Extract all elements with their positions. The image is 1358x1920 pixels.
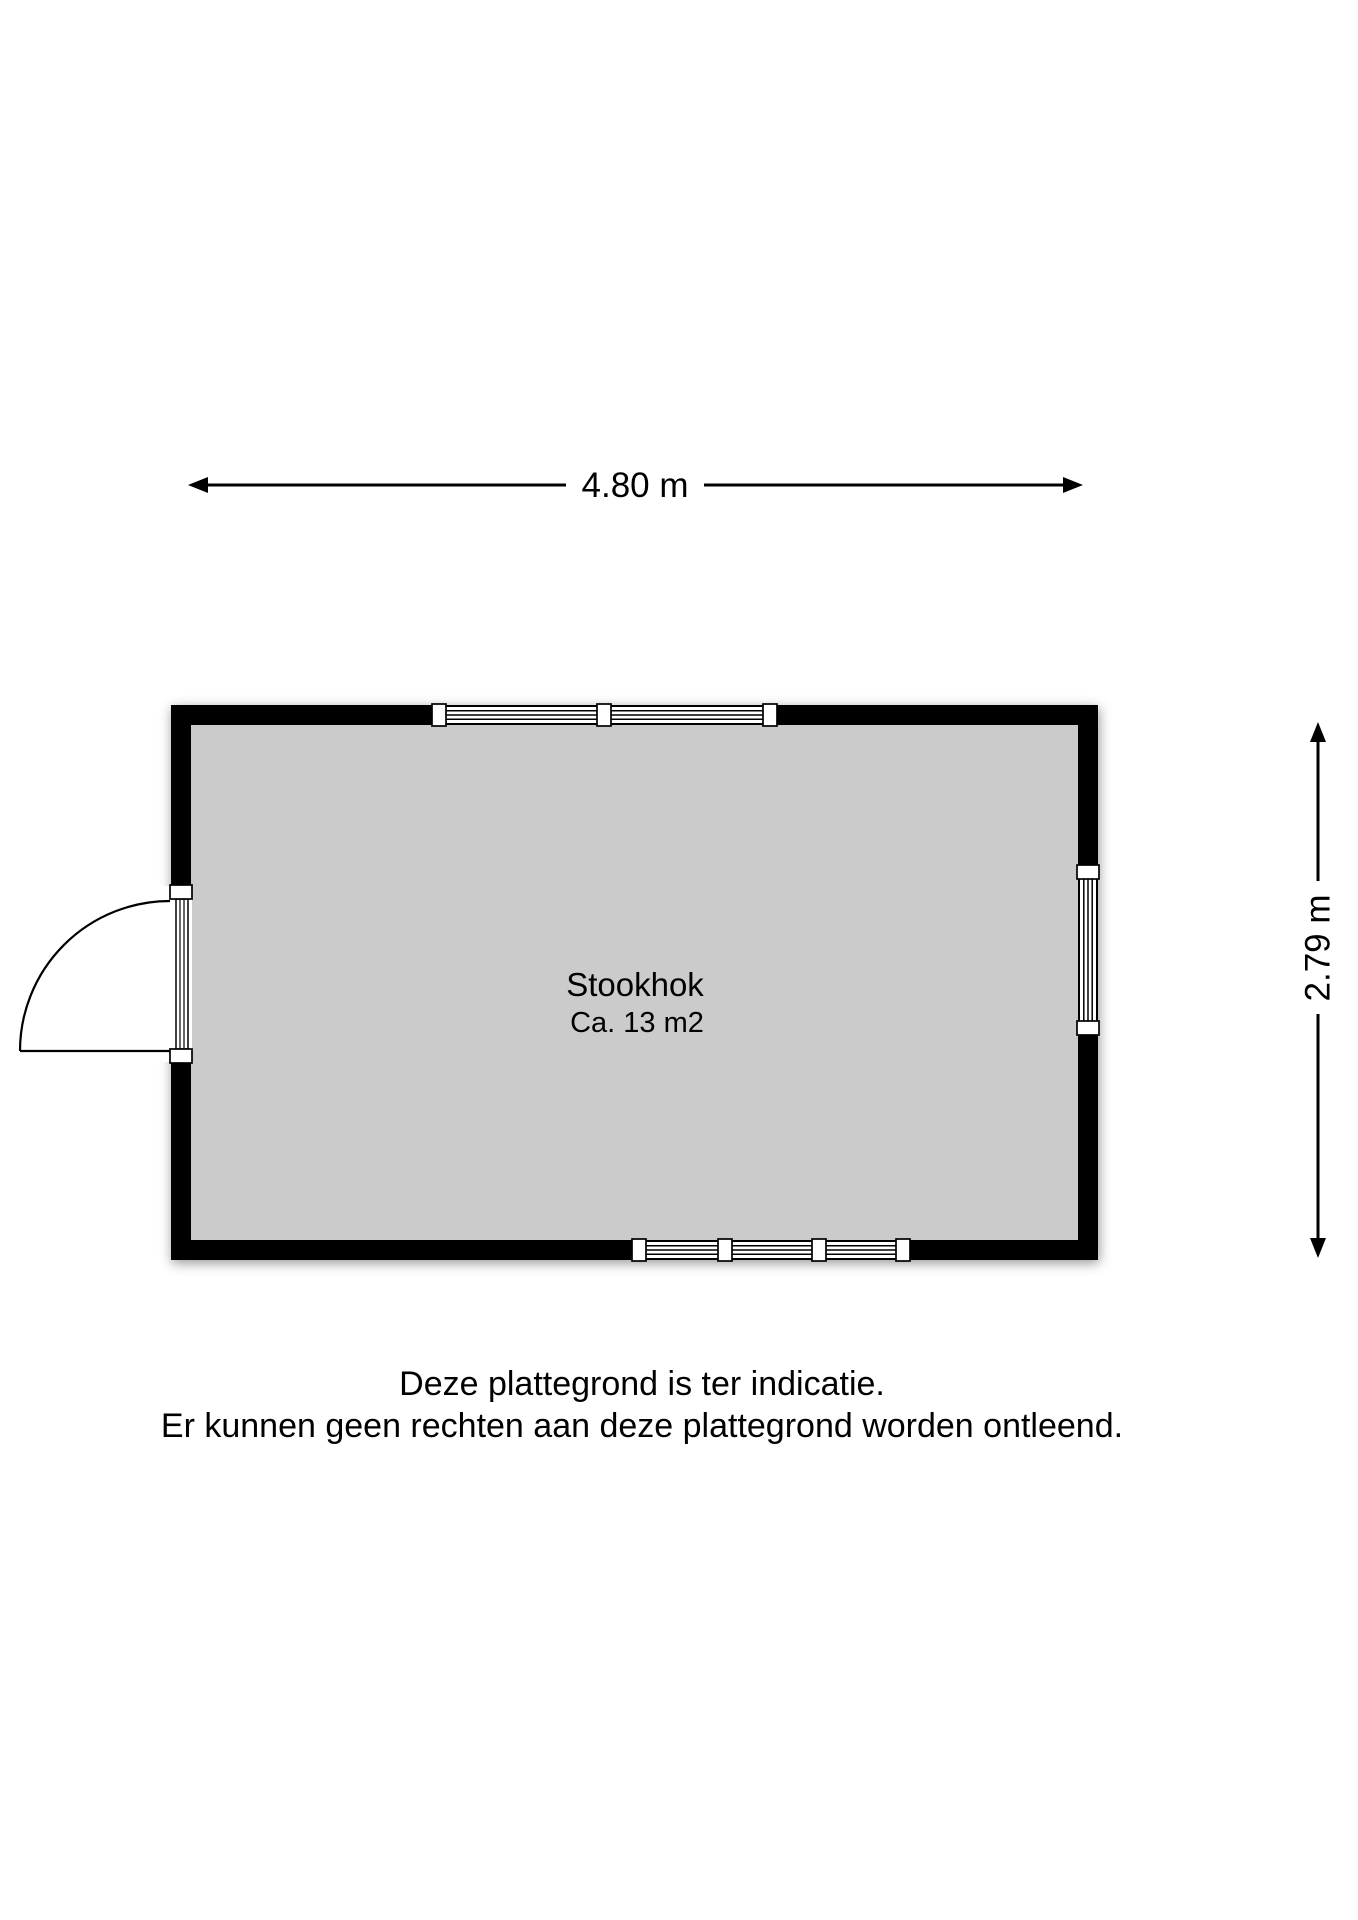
- height-dimension-arrow: 2.79 m: [1299, 722, 1338, 1258]
- disclaimer: Deze plattegrond is ter indicatie. Er ku…: [161, 1365, 1123, 1445]
- floorplan-page: 4.80 m: [0, 0, 1358, 1920]
- room-label: Stookhok Ca. 13 m2: [566, 966, 704, 1039]
- window-top-post: [432, 704, 446, 726]
- window-bottom-post: [718, 1239, 732, 1261]
- window-bottom-post: [632, 1239, 646, 1261]
- window-right: [1077, 865, 1099, 1035]
- height-dimension-label: 2.79 m: [1299, 895, 1338, 1002]
- door-left: [20, 885, 192, 1063]
- disclaimer-line-2: Er kunnen geen rechten aan deze plattegr…: [161, 1407, 1123, 1445]
- door-frame: [176, 899, 188, 1049]
- door-post: [170, 885, 192, 899]
- window-right-post: [1077, 1021, 1099, 1035]
- window-right-post: [1077, 865, 1099, 879]
- arrow-down-icon: [1310, 1238, 1326, 1258]
- window-bottom: [632, 1239, 910, 1261]
- door-swing-arc: [20, 901, 170, 1051]
- window-top-post: [597, 704, 611, 726]
- width-dimension-arrow: 4.80 m: [188, 466, 1083, 505]
- room-name-label: Stookhok: [566, 966, 704, 1003]
- door-post: [170, 1049, 192, 1063]
- window-top: [432, 704, 777, 726]
- room-area-label: Ca. 13 m2: [570, 1007, 704, 1039]
- window-top-post: [763, 704, 777, 726]
- window-bottom-post: [896, 1239, 910, 1261]
- width-dimension-label: 4.80 m: [582, 466, 689, 505]
- arrow-right-icon: [1063, 477, 1083, 493]
- floorplan-canvas: 4.80 m: [0, 0, 1358, 1920]
- disclaimer-line-1: Deze plattegrond is ter indicatie.: [399, 1365, 885, 1403]
- window-bottom-post: [812, 1239, 826, 1261]
